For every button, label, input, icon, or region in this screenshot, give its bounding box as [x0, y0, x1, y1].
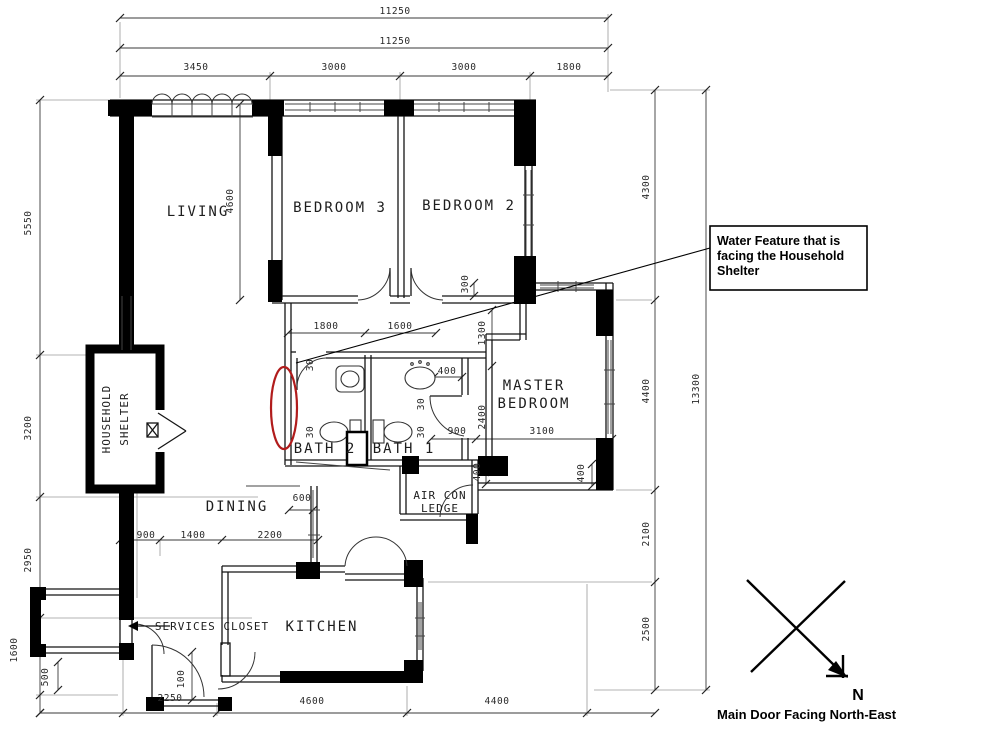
room-label-services-closet: SERVICES CLOSET [155, 620, 269, 633]
dimension-label: 3100 [530, 426, 555, 437]
dimension-label: 2250 [158, 693, 183, 704]
annotation-text-line1: Water Feature that is [717, 234, 840, 248]
dimension-label: 4300 [641, 175, 652, 200]
dimension-label: 4400 [641, 379, 652, 404]
room-label-master-line1: MASTER [503, 378, 566, 394]
dimension-label: 2400 [477, 405, 488, 430]
dimension-label: 3000 [322, 62, 347, 73]
compass-caption: Main Door Facing North-East [717, 707, 897, 722]
dimension-label: 300 [460, 275, 471, 294]
annotation-callout: Water Feature that is facing the Househo… [710, 226, 867, 290]
dimension-label: 1400 [181, 530, 206, 541]
kitchen-door-arc-left [345, 537, 376, 566]
compass-arrow-line [747, 580, 838, 669]
room-label-living: LIVING [167, 204, 230, 220]
room-label-master-line2: BEDROOM [497, 396, 570, 412]
bedroom3-door-arc [358, 268, 390, 300]
floor-plan-canvas: LIVING BEDROOM 3 BEDROOM 2 MASTER BEDROO… [0, 0, 1001, 745]
dimension-label: 2500 [641, 617, 652, 642]
entrance-door-arc-2 [218, 652, 255, 689]
dimension-label: 2100 [641, 522, 652, 547]
water-feature-highlight [271, 367, 297, 449]
bath2-toilet [320, 422, 348, 442]
dimension-label: 400 [472, 463, 483, 482]
dimension-label: 11250 [379, 6, 410, 17]
bath1-sink [405, 367, 435, 389]
dimension-label: 2200 [258, 530, 283, 541]
dimension-label: 11250 [379, 36, 410, 47]
room-label-bath2: BATH 2 [294, 441, 357, 457]
dimension-label: 3450 [184, 62, 209, 73]
dimension-label: 4600 [300, 696, 325, 707]
dimension-label: 30 [305, 426, 316, 438]
dimension-label: 400 [576, 464, 587, 483]
room-label-dining: DINING [206, 499, 269, 515]
dimension-label: 2950 [23, 548, 34, 573]
dimension-label: 1600 [9, 638, 20, 663]
bedroom2-door-arc [411, 268, 443, 300]
room-label-household-line1: HOUSEHOLD [100, 385, 113, 454]
room-label-aircon-line1: AIR CON [413, 489, 466, 502]
dimension-label: 30 [416, 398, 427, 410]
compass-cross-line [751, 581, 845, 672]
annotation-text-line3: Shelter [717, 264, 760, 278]
dimension-label: 600 [293, 493, 312, 504]
windows [122, 94, 615, 650]
room-label-household-line2: SHELTER [118, 392, 131, 445]
dimension-label: 1600 [388, 321, 413, 332]
dimension-label: 1800 [314, 321, 339, 332]
dimension-label: 500 [40, 668, 51, 687]
dimension-label: 30 [416, 426, 427, 438]
dimension-label: 13300 [691, 373, 702, 404]
dimension-label: 5550 [23, 211, 34, 236]
room-label-bath1: BATH 1 [373, 441, 436, 457]
dimension-label: 30 [305, 359, 316, 371]
dimension-label: 900 [448, 426, 467, 437]
floor-plan-drawing: LIVING BEDROOM 3 BEDROOM 2 MASTER BEDROO… [0, 0, 1001, 745]
services-closet-arrow-head [128, 621, 138, 631]
dimension-label: 4400 [485, 696, 510, 707]
compass-north-label: N [852, 687, 864, 704]
dimension-label: 400 [438, 366, 457, 377]
dimension-label: 1800 [557, 62, 582, 73]
dimension-label: 1300 [477, 321, 488, 346]
room-label-bedroom3: BEDROOM 3 [293, 200, 387, 216]
compass: N Main Door Facing North-East [717, 580, 897, 722]
dimension-label: 4600 [225, 189, 236, 214]
kitchen-door-arc-right [376, 537, 407, 566]
bath1-toilet [384, 422, 412, 442]
dimension-label: 900 [137, 530, 156, 541]
room-label-kitchen: KITCHEN [285, 619, 358, 635]
dimension-label: 100 [176, 670, 187, 689]
room-label-aircon-line2: LEDGE [421, 502, 459, 515]
annotation-leader-line [296, 248, 710, 363]
room-label-bedroom2: BEDROOM 2 [422, 198, 516, 214]
dimension-label: 3000 [452, 62, 477, 73]
annotation-text-line2: facing the Household [717, 249, 844, 263]
room-labels: LIVING BEDROOM 3 BEDROOM 2 MASTER BEDROO… [100, 198, 571, 635]
dimension-label: 3200 [23, 416, 34, 441]
